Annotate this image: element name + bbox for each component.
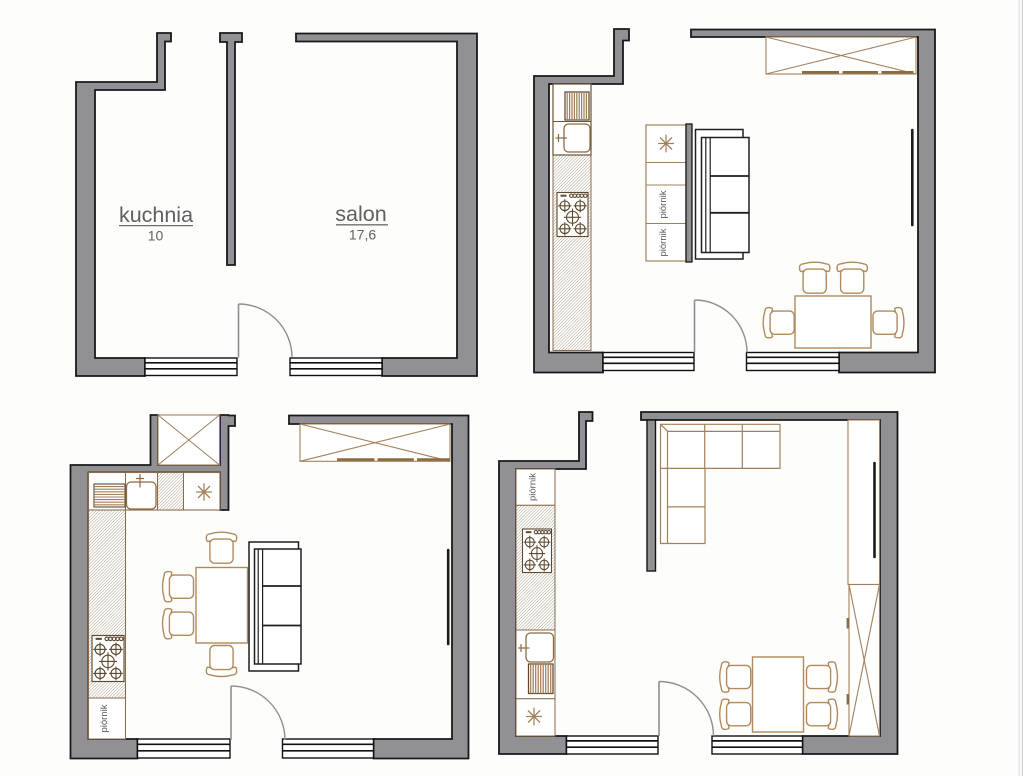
svg-text:kuchnia: kuchnia bbox=[119, 203, 193, 227]
svg-text:piórnik: piórnik bbox=[658, 190, 669, 218]
svg-text:piórnik: piórnik bbox=[99, 704, 110, 732]
svg-text:piórnik: piórnik bbox=[658, 228, 669, 256]
svg-text:17,6: 17,6 bbox=[349, 227, 376, 243]
svg-text:piórnik: piórnik bbox=[528, 473, 539, 501]
svg-text:salon: salon bbox=[335, 202, 386, 226]
svg-text:10: 10 bbox=[148, 228, 164, 244]
